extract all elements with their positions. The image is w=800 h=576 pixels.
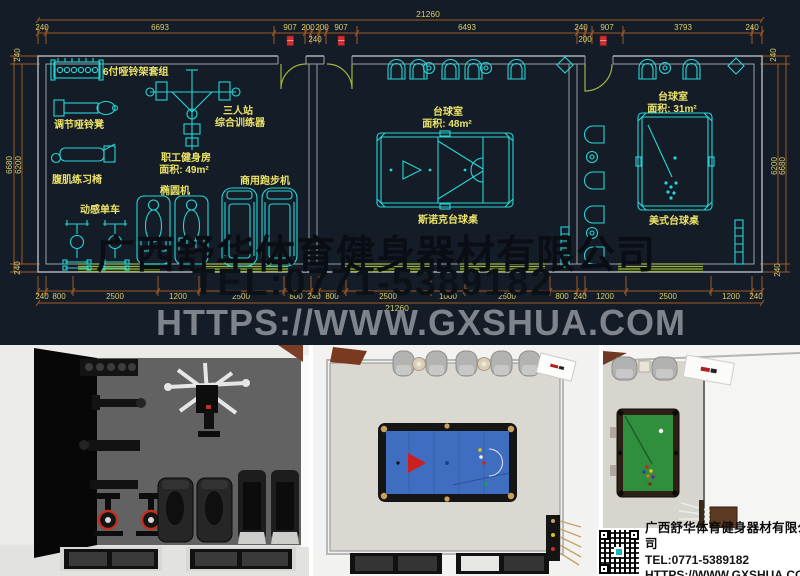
cad-floor-plan: 21260 240 6693 907 200 200 907 6493 240 … <box>0 0 800 345</box>
dim: 240 <box>749 292 763 301</box>
dim: 240 <box>35 292 49 301</box>
pool-table-symbol <box>636 113 714 210</box>
dim: 2500 <box>659 292 677 301</box>
dim-total-bottom: 21260 <box>385 303 409 313</box>
design-sheet: 21260 240 6693 907 200 200 907 6493 240 … <box>0 0 800 576</box>
elliptical-symbol <box>137 196 208 264</box>
dim: 240 <box>35 23 49 32</box>
label-elliptical: 椭圆机 <box>160 184 190 197</box>
snooker-table-symbol <box>377 131 513 209</box>
door-arc <box>585 64 612 91</box>
dimension-text-sides: 240 6680 6200 240 240 6200 6680 240 <box>5 48 787 277</box>
billiard-large-title: 台球室 <box>433 105 463 118</box>
dim: 6693 <box>151 23 169 32</box>
corner-diamond <box>557 57 573 73</box>
dim: 6200 <box>14 156 23 174</box>
label-treadmill: 商用跑步机 <box>240 174 290 187</box>
cad-plan-svg: 21260 240 6693 907 200 200 907 6493 240 … <box>0 0 800 345</box>
label-snooker-table: 斯诺克台球桌 <box>418 213 478 226</box>
dim: 200 <box>301 23 315 32</box>
dim: 240 <box>573 292 587 301</box>
billiard-small-area: 面积: 31m² <box>647 102 697 115</box>
dim: 800 <box>325 292 339 301</box>
qr-finder-icon <box>599 564 609 574</box>
gym-left-wall <box>34 348 97 558</box>
dim: 240 <box>13 48 22 62</box>
dim: 800 <box>52 292 66 301</box>
dim: 6493 <box>458 23 476 32</box>
label-trainer-1: 三人站 <box>223 104 253 117</box>
adjustable-bench-symbol <box>54 100 118 116</box>
label-dumbbell-rack: 6付哑铃架套组 <box>103 65 169 78</box>
cue-rack-symbol <box>735 220 743 264</box>
label-spin-bike: 动感单车 <box>80 203 120 216</box>
qr-center-logo <box>614 547 624 557</box>
gym-title: 职工健身房 <box>161 151 211 164</box>
window-strips <box>78 264 703 272</box>
gym-area: 面积: 49m² <box>159 163 209 176</box>
cue-rack-symbol <box>561 227 569 267</box>
dim-sub: 200 <box>578 35 592 44</box>
dim: 1200 <box>722 292 740 301</box>
dumbbell-rack-symbol <box>51 58 103 80</box>
dim: 3793 <box>674 23 692 32</box>
dimension-text-top: 21260 240 6693 907 200 200 907 6493 240 … <box>35 9 759 44</box>
green-pool-table <box>610 409 679 497</box>
dim: 240 <box>773 263 782 277</box>
dim: 200 <box>315 23 329 32</box>
door-tag-icons <box>287 36 607 46</box>
door-tag-icon <box>287 36 294 46</box>
dim: 2500 <box>498 292 516 301</box>
dim: 1000 <box>439 292 457 301</box>
footer-tel: TEL:0771-5389182 <box>645 553 800 568</box>
dim-sub: 240 <box>308 35 322 44</box>
dim: 907 <box>334 23 348 32</box>
dim: 800 <box>555 292 569 301</box>
dim: 240 <box>745 23 759 32</box>
spin-bike-symbol <box>63 220 129 270</box>
qr-finder-icon <box>599 530 609 540</box>
label-ab-chair: 腹肌练习椅 <box>52 173 102 186</box>
qr-code <box>599 530 639 574</box>
dim: 1200 <box>596 292 614 301</box>
dim: 240 <box>769 48 778 62</box>
dim: 240 <box>13 261 22 275</box>
qr-finder-icon <box>629 530 639 540</box>
dim: 2500 <box>106 292 124 301</box>
billiard-large-area: 面积: 48m² <box>422 117 472 130</box>
door-tag-icon <box>338 36 345 46</box>
door-arc <box>327 64 352 89</box>
render-dumbbell-rack <box>80 359 138 376</box>
dim: 2500 <box>379 292 397 301</box>
blue-pool-table <box>378 423 517 502</box>
armchair-row <box>639 58 744 79</box>
ab-chair-symbol <box>52 144 116 163</box>
render-gym-3d <box>0 345 309 576</box>
door-tag-icon <box>600 36 607 46</box>
company-info-box: 广西舒华体育健身器材有限公司 TEL:0771-5389182 HTTPS://… <box>597 528 800 576</box>
footer-website: HTTPS://WWW.GXSHUA.COM <box>645 568 800 576</box>
label-trainer-2: 综合训练器 <box>215 116 266 129</box>
walls <box>38 54 762 272</box>
dim: 800 <box>289 292 303 301</box>
dim: 240 <box>307 292 321 301</box>
render-billiard-large-3d <box>313 345 599 576</box>
gym-equipment <box>51 58 297 270</box>
dim: 240 <box>574 23 588 32</box>
armchair-row <box>388 60 525 80</box>
dim: 907 <box>600 23 614 32</box>
billiard-small-title: 台球室 <box>658 90 688 103</box>
dim: 6680 <box>778 157 787 175</box>
door-arc <box>281 64 306 89</box>
dim: 6680 <box>5 156 14 174</box>
dim: 1200 <box>169 292 187 301</box>
label-pool-table: 美式台球桌 <box>649 214 699 227</box>
billiard-large-equipment <box>377 57 573 267</box>
treadmill-symbol <box>222 188 297 266</box>
dim: 2500 <box>232 292 250 301</box>
dim-total-top: 21260 <box>416 9 440 19</box>
dim: 907 <box>283 23 297 32</box>
footer-company: 广西舒华体育健身器材有限公司 <box>645 521 800 552</box>
billiard-small-equipment <box>585 58 745 264</box>
label-adjustable-bench: 调节哑铃凳 <box>54 118 104 131</box>
armchair-column <box>585 126 605 264</box>
